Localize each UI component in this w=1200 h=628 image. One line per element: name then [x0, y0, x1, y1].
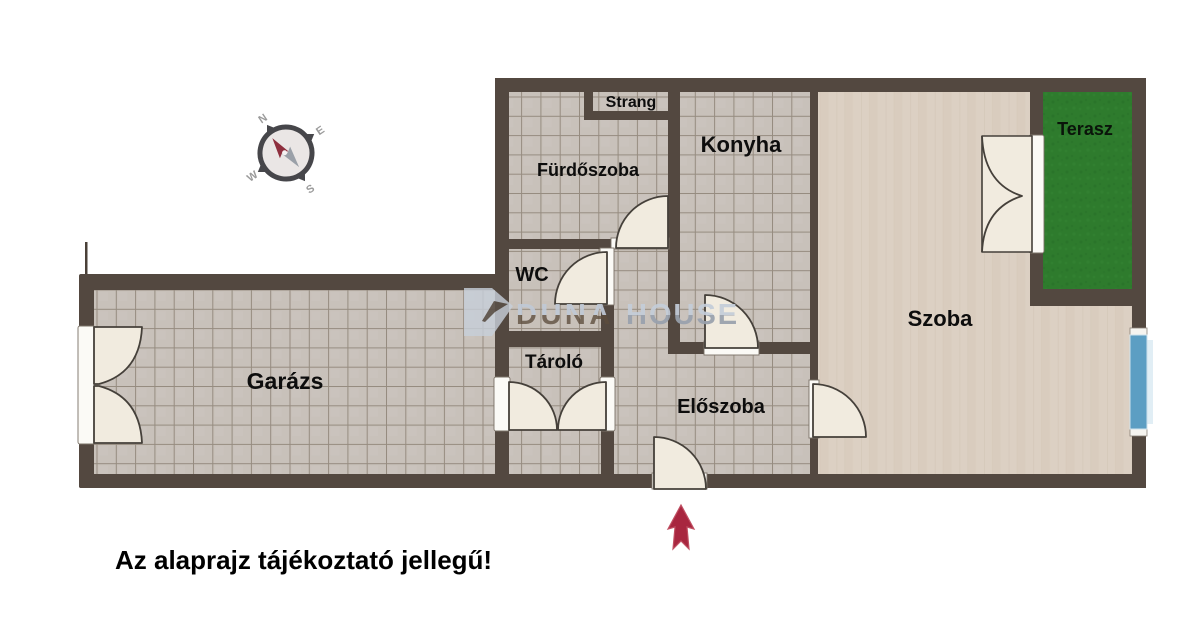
svg-text:Szoba: Szoba: [908, 306, 974, 331]
svg-text:Tároló: Tároló: [525, 352, 583, 373]
svg-text:Strang: Strang: [606, 94, 657, 111]
svg-text:Az alaprajz tájékoztató jelleg: Az alaprajz tájékoztató jellegű!: [115, 545, 492, 575]
svg-text:Előszoba: Előszoba: [677, 396, 766, 418]
svg-text:Konyha: Konyha: [701, 132, 782, 157]
svg-text:Terasz: Terasz: [1057, 119, 1113, 139]
svg-text:Garázs: Garázs: [247, 368, 324, 394]
svg-text:WC: WC: [515, 264, 548, 286]
svg-text:Fürdőszoba: Fürdőszoba: [537, 160, 640, 180]
